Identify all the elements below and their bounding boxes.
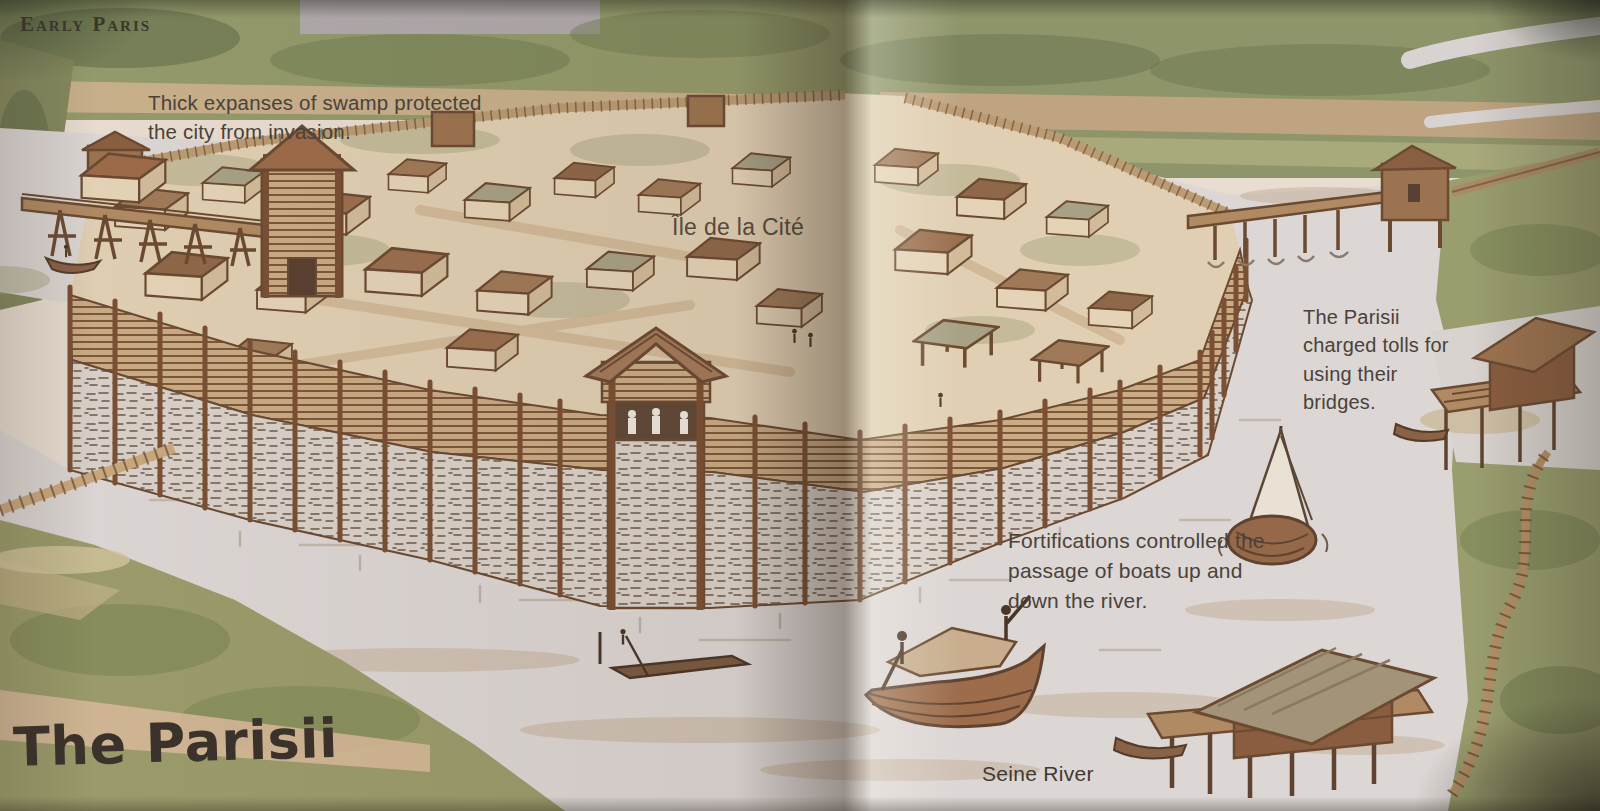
caption-fortifications: Fortifications controlled the passage of… [1008,526,1280,615]
caption-tolls: The Parisii charged tolls for using thei… [1303,303,1461,417]
book-page-photo: Early Paris Thick expanses of swamp prot… [0,0,1600,811]
page-header: Early Paris [20,12,151,37]
caption-swamp: Thick expanses of swamp protected the ci… [148,88,500,146]
river-label: Seine River [982,762,1094,786]
page-title: The Parisii [12,707,339,779]
island-label: Île de la Cité [672,214,804,241]
gate-tower [586,328,726,610]
